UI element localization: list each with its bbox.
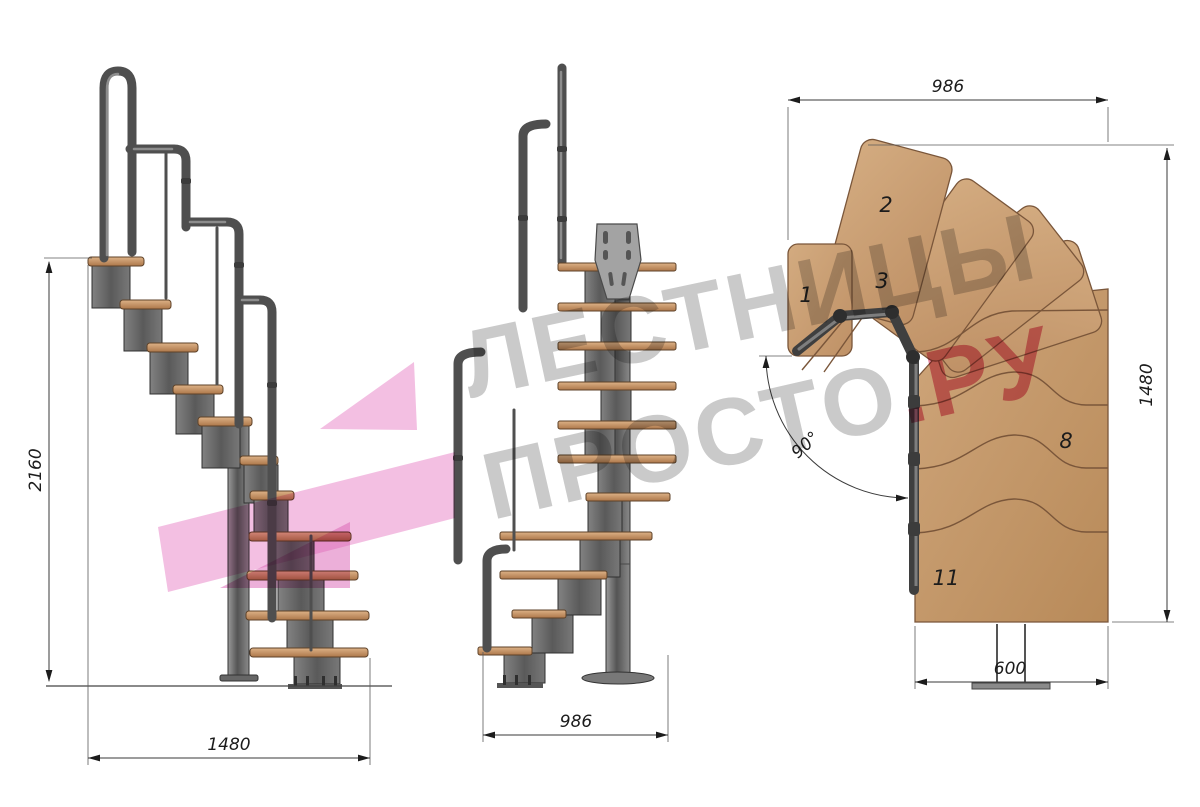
tread-number-11: 11 [933, 566, 960, 590]
front-pole-base-flange [582, 672, 654, 684]
front-width-label: 986 [560, 712, 593, 732]
side-width-label: 1480 [207, 735, 250, 755]
staircase-drawing-page: 2160 1480 [0, 0, 1200, 807]
plan-height-label: 1480 [1137, 363, 1157, 406]
tread-number-2: 2 [879, 193, 892, 217]
plan-support-foot [972, 624, 1050, 689]
technical-drawing: 2160 1480 [0, 0, 1200, 807]
side-height-label: 2160 [26, 448, 46, 491]
tread-number-8: 8 [1059, 429, 1072, 453]
dimension-plan-exit-width: 600 [915, 626, 1108, 689]
dimension-side-height: 2160 [26, 258, 92, 682]
plan-width-label: 986 [932, 77, 965, 97]
plan-exit-width-label: 600 [994, 659, 1026, 679]
logo-triangle-top [320, 362, 417, 430]
side-pole-base-flange [220, 675, 258, 681]
front-handrail-rod [557, 68, 567, 262]
